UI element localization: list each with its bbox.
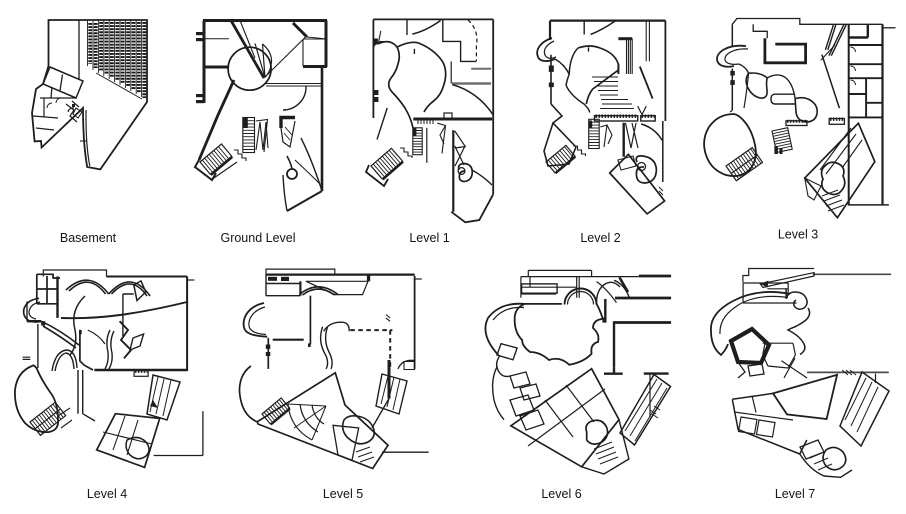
svg-text:Level 6: Level 6 [541, 487, 581, 501]
svg-text:Level 1: Level 1 [409, 231, 449, 245]
svg-text:Level 3: Level 3 [778, 228, 818, 242]
svg-text:Level 7: Level 7 [775, 487, 815, 501]
svg-text:Basement: Basement [60, 231, 117, 245]
svg-text:Ground Level: Ground Level [220, 231, 295, 245]
svg-text:Level 5: Level 5 [323, 487, 363, 501]
svg-text:Level 2: Level 2 [580, 231, 620, 245]
svg-text:Level 4: Level 4 [87, 487, 127, 501]
